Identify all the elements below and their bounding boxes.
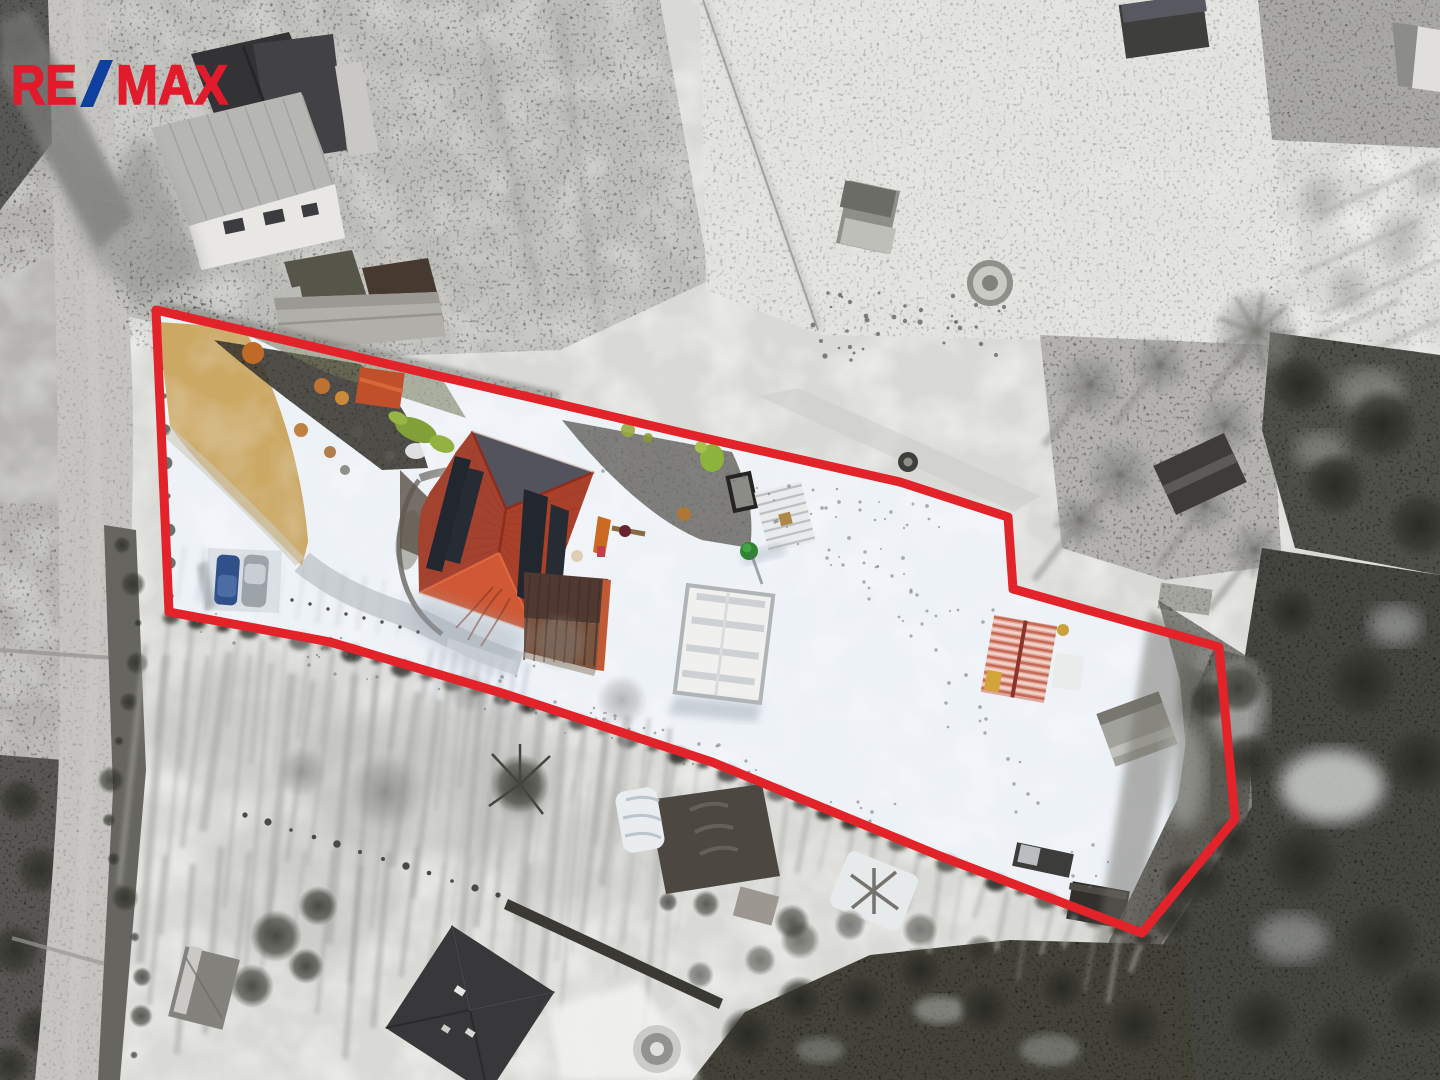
svg-text:MAX: MAX bbox=[116, 53, 228, 116]
svg-text:RE: RE bbox=[11, 53, 77, 116]
